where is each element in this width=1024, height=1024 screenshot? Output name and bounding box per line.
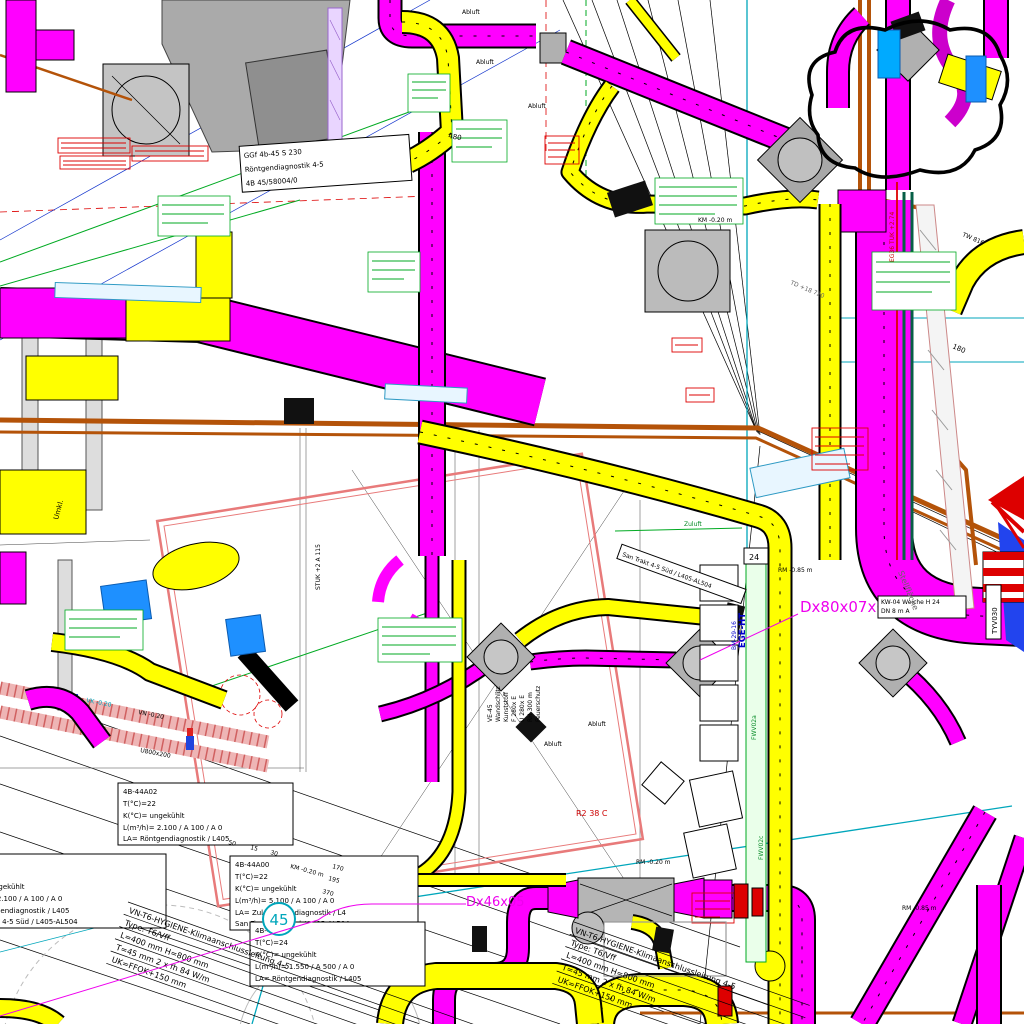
svg-text:50: 50 — [227, 839, 236, 848]
svg-text:TYV030: TYV030 — [991, 607, 999, 635]
box1-line4: L(m³/h)= 2.100 / A 100 / A 0 — [123, 824, 222, 832]
svg-text:K(°C)= ungekühlt: K(°C)= ungekühlt — [235, 885, 297, 893]
svg-text:Abluft: Abluft — [476, 59, 494, 66]
svg-text:TW 816: TW 816 — [960, 231, 985, 247]
svg-text:RH 300 m: RH 300 m — [527, 692, 534, 722]
svg-text:San Trakt 4-5 Süd / L405-AL504: San Trakt 4-5 Süd / L405-AL504 — [621, 551, 712, 590]
svg-text:San Finger 4-5 Süd / L405-AL50: San Finger 4-5 Süd / L405-AL504 — [0, 918, 78, 926]
svg-text:Wandschlitz: Wandschlitz — [495, 686, 502, 722]
svg-text:U 280x E: U 280x E — [519, 695, 526, 722]
svg-text:T(°C)=22: T(°C)=22 — [234, 873, 268, 881]
label-r2: R2 38 C — [576, 809, 608, 818]
svg-text:FWV02c: FWV02c — [758, 836, 765, 860]
box1-line5: LA= Röntgendiagnostik / L405 — [123, 835, 229, 843]
svg-text:FWV02a: FWV02a — [751, 715, 758, 740]
annotation-box-4B-44A02: 4B-44A02 T(°C)=22 K(°C)= ungekühlt L(m³/… — [118, 783, 293, 845]
svg-text:180: 180 — [951, 342, 966, 355]
cad-plan-canvas: 4B-44A02 T(°C)=22 K(°C)= ungekühlt L(m³/… — [0, 0, 1024, 1024]
equipment-annotation-boxes: 4B-44A02 T(°C)=22 K(°C)= ungekühlt L(m³/… — [0, 783, 425, 986]
svg-text:Abluft: Abluft — [544, 741, 562, 748]
label-dx46: Dx46x05 — [466, 895, 524, 910]
svg-text:STUK +2 A 115: STUK +2 A 115 — [315, 544, 322, 590]
svg-text:L(m³/h)= 2.100 / A 100 / A 0: L(m³/h)= 2.100 / A 100 / A 0 — [0, 895, 62, 903]
svg-text:EGE-HT: EGE-HT — [738, 613, 748, 648]
box1-line1: 4B-44A02 — [123, 788, 157, 796]
svg-text:Zuluft: Zuluft — [684, 521, 702, 528]
svg-text:45: 45 — [269, 911, 288, 929]
svg-text:Kunststoff: Kunststoff — [503, 691, 510, 722]
svg-text:Abluft: Abluft — [528, 103, 546, 110]
svg-text:RM -0.85 m: RM -0.85 m — [902, 905, 937, 912]
svg-text:15: 15 — [249, 844, 258, 853]
box1-line2: T(°C)=22 — [122, 800, 156, 808]
wall-slot-note: VE-45 Wandschlitz Kunststoff F 280x E U … — [487, 686, 542, 722]
svg-text:LA= Röntgendiagnostik / L405: LA= Röntgendiagnostik / L405 — [0, 907, 69, 915]
svg-text:Abluft: Abluft — [462, 9, 480, 16]
svg-text:RM -0.20 m: RM -0.20 m — [636, 859, 671, 866]
svg-text:KM -0.20 m: KM -0.20 m — [698, 217, 732, 224]
svg-text:RM -0.85 m: RM -0.85 m — [778, 567, 813, 574]
box1-line3: K(°C)= ungekühlt — [123, 812, 185, 820]
grille-box — [540, 33, 566, 63]
svg-text:Abluft: Abluft — [588, 721, 606, 728]
svg-text:EG36 TUK +2.74: EG36 TUK +2.74 — [889, 212, 896, 262]
svg-text:K(°C)= ungekühlt: K(°C)= ungekühlt — [0, 883, 25, 891]
svg-text:Feuerschutz: Feuerschutz — [535, 686, 542, 722]
svg-text:T(°C)=24: T(°C)=24 — [254, 939, 288, 947]
grid-bubble-45: 45 — [263, 903, 295, 935]
svg-text:VE-45: VE-45 — [487, 704, 494, 722]
svg-text:DN 8 m A: DN 8 m A — [881, 608, 910, 615]
room-outline-salmon — [0, 454, 643, 906]
svg-text:24: 24 — [749, 553, 759, 562]
svg-text:4B-44A00: 4B-44A00 — [235, 861, 269, 869]
svg-text:BM-29-16: BM-29-16 — [731, 621, 738, 650]
svg-text:F 280x E: F 280x E — [511, 696, 518, 722]
